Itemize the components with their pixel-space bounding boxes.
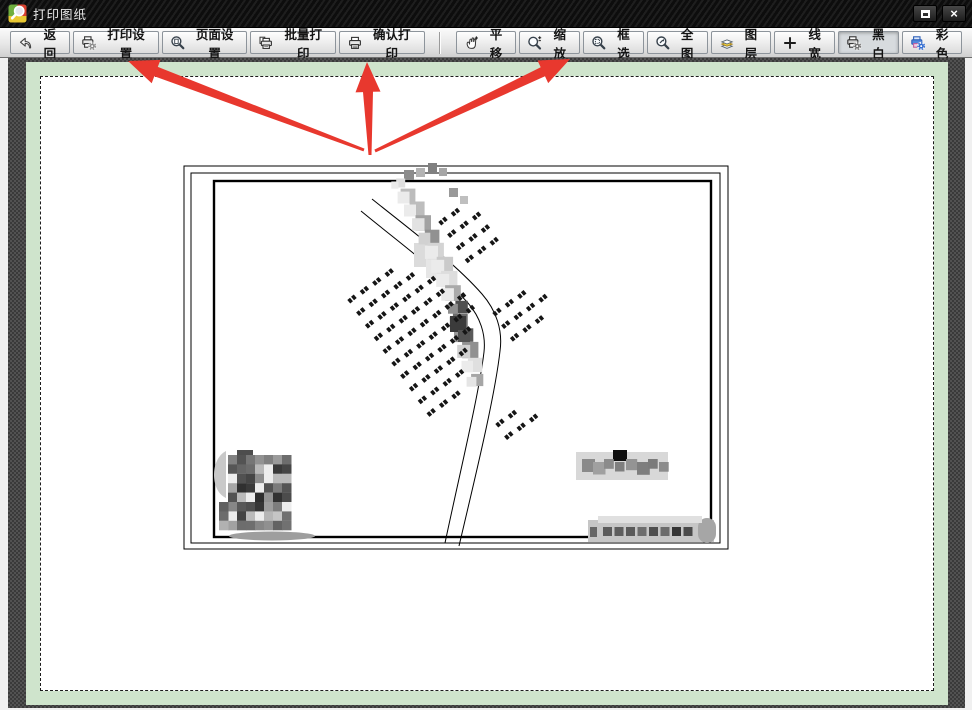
- toolbar-button-label: 图层: [739, 24, 764, 62]
- toolbar-button-confirm-print[interactable]: 确认打印: [339, 31, 425, 54]
- toolbar-button-label: 确认打印: [367, 24, 417, 62]
- toolbar-button-black-white[interactable]: 黑白: [838, 31, 899, 54]
- toolbar-button-line-width[interactable]: 线宽: [774, 31, 835, 54]
- layers-icon: [719, 35, 735, 51]
- printer-gear-icon: [81, 35, 97, 51]
- toolbar-button-label: 平移: [484, 24, 509, 62]
- printer-stack-icon: [258, 35, 274, 51]
- app-logo-icon: [8, 4, 27, 23]
- toolbar-button-pan[interactable]: 平移: [456, 31, 517, 54]
- toolbar-button-label: 打印设置: [101, 24, 151, 62]
- toolbar-button-label: 返回: [38, 24, 63, 62]
- toolbar-button-label: 页面设置: [190, 24, 240, 62]
- toolbar-button-label: 全图: [675, 24, 700, 62]
- window-controls: ×: [913, 5, 966, 22]
- printer-icon: [347, 35, 363, 51]
- toolbar-button-label: 线宽: [802, 24, 827, 62]
- magnifier-arrow-icon: [655, 35, 671, 51]
- toolbar-button-label: 缩放: [547, 24, 572, 62]
- toolbar-button-zoom[interactable]: 缩放: [519, 31, 580, 54]
- annotation-arrow-confirm-print: [356, 62, 381, 155]
- toolbar-button-back[interactable]: 返回: [10, 31, 71, 54]
- close-button[interactable]: ×: [942, 5, 966, 22]
- toolbar-separator: [439, 32, 440, 54]
- toolbar-button-page-setup[interactable]: 页面设置: [162, 31, 248, 54]
- print-preview-canvas[interactable]: [8, 58, 965, 708]
- hand-pan-icon: [464, 35, 480, 51]
- toolbar-button-label: 框选: [611, 24, 636, 62]
- annotation-arrow-box-select: [374, 59, 570, 152]
- toolbar: 返回 打印设置 页面设置 批量打印 确认打印 平移 缩放 框选: [0, 28, 972, 58]
- toolbar-button-label: 批量打印: [278, 24, 328, 62]
- toolbar-button-print-settings[interactable]: 打印设置: [73, 31, 159, 54]
- drawing-preview: [8, 58, 965, 708]
- print-drawing-window: 打印图纸 × 返回 打印设置 页面设置 批量打印 确认打印: [0, 0, 972, 710]
- toolbar-button-layers[interactable]: 图层: [711, 31, 772, 54]
- toolbar-button-label: 黑白: [866, 24, 891, 62]
- crosshair-icon: [782, 35, 798, 51]
- printer-color-icon: [910, 35, 926, 51]
- toolbar-button-color[interactable]: 彩色: [902, 31, 963, 54]
- toolbar-button-box-select[interactable]: 框选: [583, 31, 644, 54]
- back-arrow-icon: [18, 35, 34, 51]
- magnifier-box-icon: [591, 35, 607, 51]
- printer-bw-icon: [846, 35, 862, 51]
- canvas-frame: [0, 58, 972, 710]
- toolbar-button-label: 彩色: [930, 24, 955, 62]
- toolbar-button-batch-print[interactable]: 批量打印: [250, 31, 336, 54]
- restore-button[interactable]: [913, 5, 937, 22]
- restore-icon: [921, 10, 930, 18]
- window-title: 打印图纸: [33, 4, 87, 23]
- close-icon: ×: [950, 7, 958, 20]
- magnifier-page-icon: [170, 35, 186, 51]
- magnifier-plusminus-icon: [527, 35, 543, 51]
- annotation-arrow-print-settings: [128, 60, 365, 151]
- toolbar-button-full-view[interactable]: 全图: [647, 31, 708, 54]
